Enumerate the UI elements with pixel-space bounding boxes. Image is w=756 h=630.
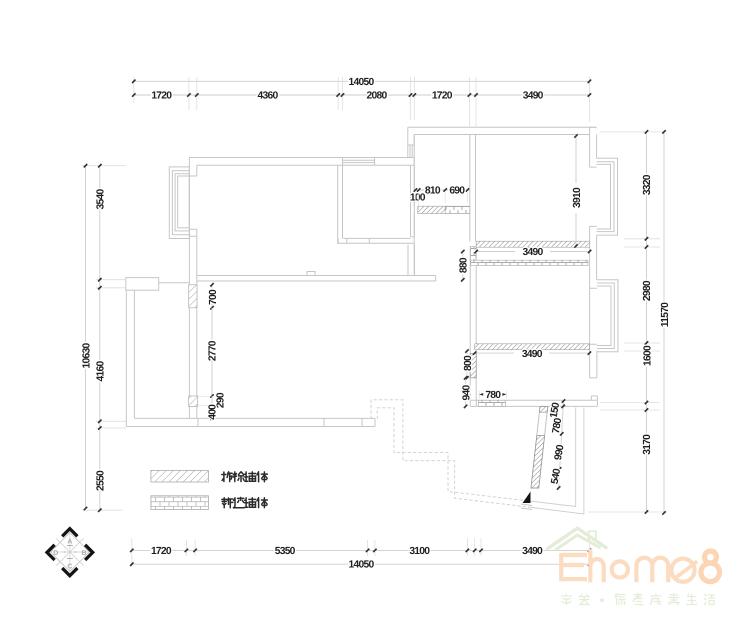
svg-text:1720: 1720	[151, 546, 172, 557]
svg-text:400: 400	[208, 404, 219, 420]
svg-text:3490: 3490	[523, 91, 544, 102]
svg-text:B: B	[81, 550, 86, 557]
svg-text:11570: 11570	[660, 302, 671, 327]
svg-text:3320: 3320	[642, 174, 653, 195]
svg-text:14050: 14050	[349, 77, 375, 88]
svg-text:700: 700	[208, 289, 219, 305]
svg-text:3540: 3540	[96, 189, 107, 210]
svg-text:1600: 1600	[642, 345, 653, 366]
svg-text:A: A	[67, 539, 72, 546]
svg-text:800: 800	[463, 355, 474, 371]
svg-text:990: 990	[553, 444, 567, 462]
svg-text:540: 540	[550, 467, 564, 485]
svg-text:2980: 2980	[642, 280, 653, 301]
svg-text:3490: 3490	[522, 546, 543, 557]
svg-text:940: 940	[461, 385, 472, 401]
svg-text:10630: 10630	[81, 343, 92, 369]
svg-text:4360: 4360	[258, 91, 279, 102]
svg-text:690: 690	[449, 185, 465, 196]
svg-text:780: 780	[485, 390, 501, 401]
svg-text:780: 780	[551, 417, 565, 435]
svg-text:3100: 3100	[409, 546, 430, 557]
svg-text:5350: 5350	[275, 546, 296, 557]
svg-text:880: 880	[459, 257, 470, 273]
svg-text:3910: 3910	[572, 187, 583, 208]
svg-text:2080: 2080	[367, 91, 388, 102]
svg-text:C: C	[67, 564, 72, 571]
svg-text:4160: 4160	[96, 361, 107, 382]
svg-text:2550: 2550	[96, 470, 107, 491]
svg-text:3170: 3170	[642, 434, 653, 455]
svg-text:3490: 3490	[523, 247, 544, 258]
svg-text:810: 810	[425, 185, 441, 196]
svg-text:D: D	[53, 550, 58, 557]
svg-text:2770: 2770	[208, 340, 219, 361]
svg-text:3490: 3490	[522, 349, 543, 360]
svg-text:1720: 1720	[151, 91, 172, 102]
svg-text:1720: 1720	[432, 91, 453, 102]
svg-text:100: 100	[410, 192, 426, 203]
svg-text:14050: 14050	[349, 560, 375, 571]
svg-text:150: 150	[549, 401, 563, 419]
